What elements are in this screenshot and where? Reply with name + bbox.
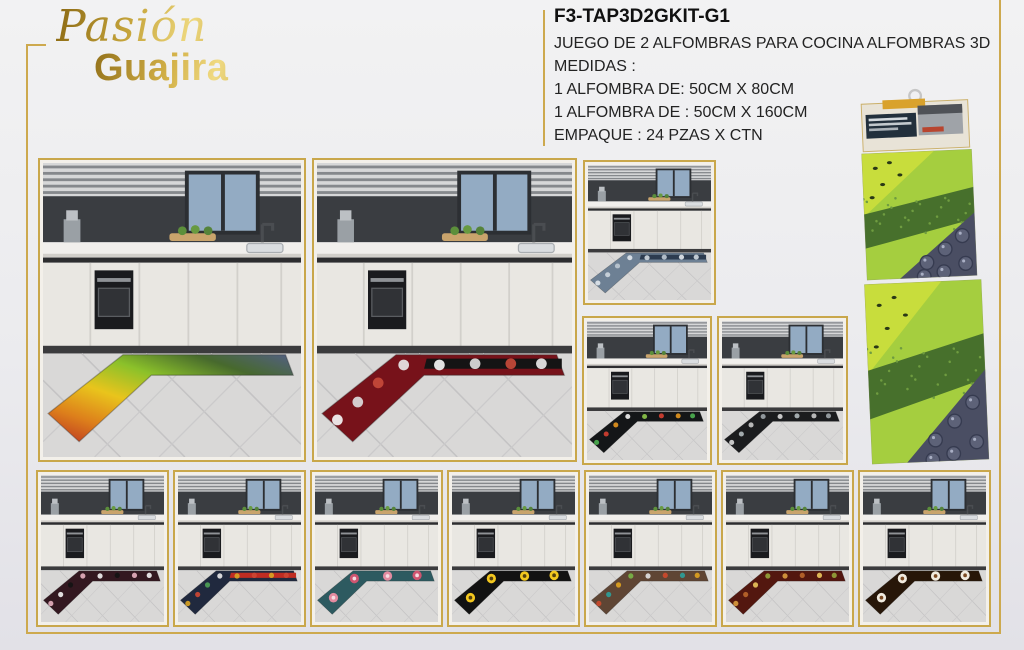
product-sku: F3-TAP3D2GKIT-G1 [554, 5, 994, 29]
brand-word-pasion: Pasión [56, 4, 316, 50]
kitchen-photo-black-veggie-doodle-mat [582, 316, 712, 465]
info-divider-line [543, 10, 545, 146]
product-measures-label: MEDIDAS : [554, 55, 994, 78]
brand-word-guajira: Guajira [94, 48, 316, 88]
package-photo-hanging-display [853, 83, 993, 468]
kitchen-photo-checker-coffee-maroon-mat [36, 470, 169, 627]
brand-logo: Pasión Guajira [56, 4, 316, 88]
kitchen-photo-fruit-rainbow-mat [38, 158, 306, 462]
kitchen-photo-denim-blue-mat [583, 160, 716, 305]
kitchen-photo-spice-bottles-red-mat [721, 470, 854, 627]
kitchen-photo-black-sunflower-mat [447, 470, 580, 627]
gold-frame-bottom [26, 632, 1001, 634]
catalog-page: Pasión Guajira F3-TAP3D2GKIT-G1 JUEGO DE… [0, 0, 1024, 650]
kitchen-photo-teal-peony-mat [310, 470, 443, 627]
gold-frame-right [999, 0, 1001, 634]
kitchen-photo-navy-food-mat [173, 470, 306, 627]
kitchen-photo-coffee-cup-brown-mat [858, 470, 991, 627]
product-description: JUEGO DE 2 ALFOMBRAS PARA COCINA ALFOMBR… [554, 32, 994, 55]
gold-frame-left [26, 44, 28, 634]
kitchen-photo-chalkboard-doodle-mat [717, 316, 848, 465]
kitchen-photo-chef-red-mat [312, 158, 577, 462]
kitchen-photo-wood-mugs-mat [584, 470, 717, 627]
gold-frame-top-bracket [26, 44, 46, 46]
